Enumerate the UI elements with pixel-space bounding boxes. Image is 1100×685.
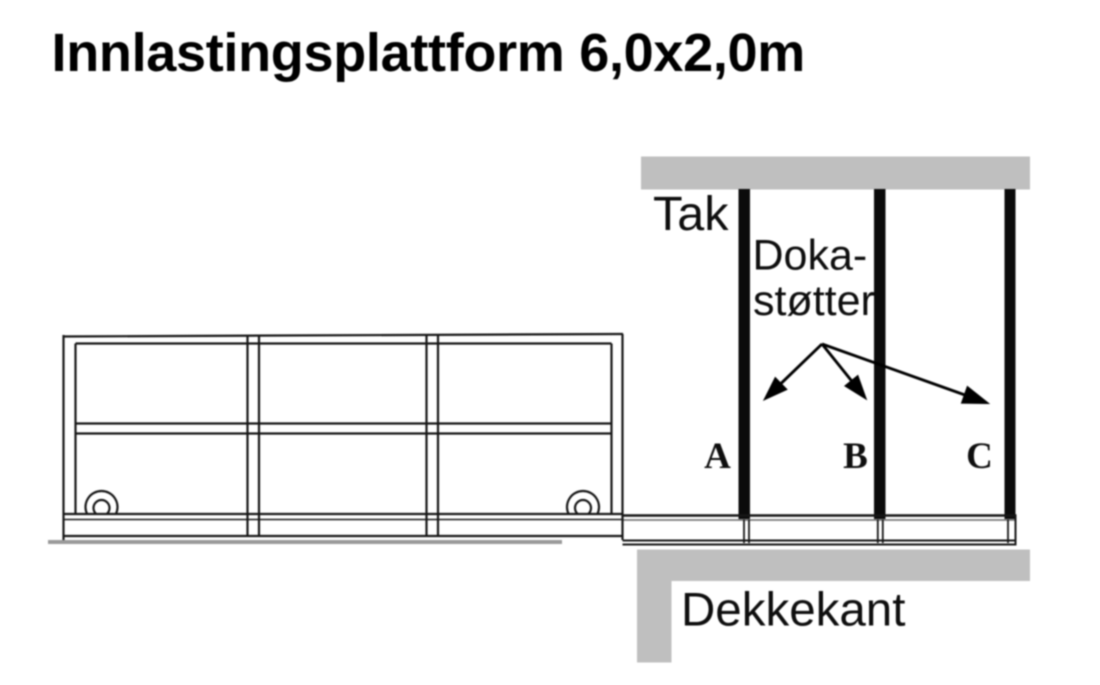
svg-text:A: A xyxy=(704,436,731,477)
svg-text:støtter: støtter xyxy=(753,277,875,325)
svg-text:B: B xyxy=(843,436,868,477)
svg-text:Innlastingsplattform 6,0x2,0m: Innlastingsplattform 6,0x2,0m xyxy=(52,23,806,83)
svg-text:Dekkekant: Dekkekant xyxy=(681,584,905,637)
svg-text:Doka-: Doka- xyxy=(753,232,868,280)
svg-text:Tak: Tak xyxy=(653,187,729,241)
svg-text:C: C xyxy=(966,436,993,477)
